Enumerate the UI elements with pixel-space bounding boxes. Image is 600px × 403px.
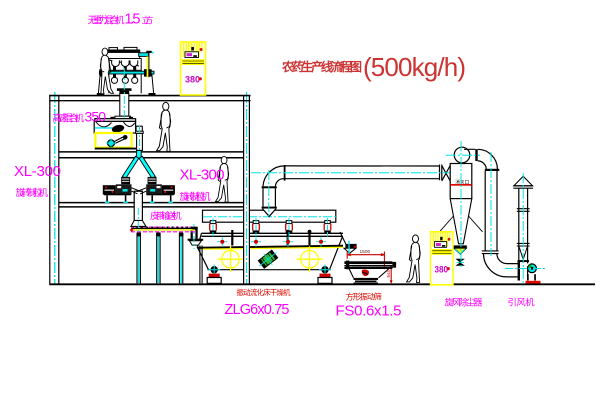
svg-text:农药生产线流程图: 农药生产线流程图 — [281, 59, 362, 74]
svg-text:1.5: 1.5 — [125, 12, 141, 28]
svg-text:(500kg/h): (500kg/h) — [363, 52, 466, 82]
svg-text:旋转制粒机: 旋转制粒机 — [16, 187, 49, 199]
svg-text:FS0.6x1.5: FS0.6x1.5 — [336, 303, 402, 320]
svg-text:引风机: 引风机 — [508, 297, 536, 308]
svg-text:350: 350 — [85, 109, 107, 125]
svg-text:皮带输送机: 皮带输送机 — [150, 210, 182, 221]
svg-text:无重力混合机: 无重力混合机 — [88, 15, 125, 27]
svg-text:立方: 立方 — [142, 15, 154, 26]
svg-text:1500: 1500 — [360, 249, 371, 255]
svg-text:ZLG6x0.75: ZLG6x0.75 — [225, 302, 290, 318]
svg-text:消灰口: 消灰口 — [455, 179, 469, 186]
svg-text:旋转制粒机: 旋转制粒机 — [180, 190, 211, 203]
svg-text:XL-300: XL-300 — [180, 167, 225, 184]
svg-text:振动流化床干燥机: 振动流化床干燥机 — [237, 288, 292, 297]
svg-text:XL-300: XL-300 — [14, 163, 61, 180]
svg-text:高速混合机: 高速混合机 — [53, 113, 85, 125]
svg-text:旋风除尘器: 旋风除尘器 — [445, 297, 484, 308]
svg-text:方形振动筛: 方形振动筛 — [346, 292, 383, 302]
